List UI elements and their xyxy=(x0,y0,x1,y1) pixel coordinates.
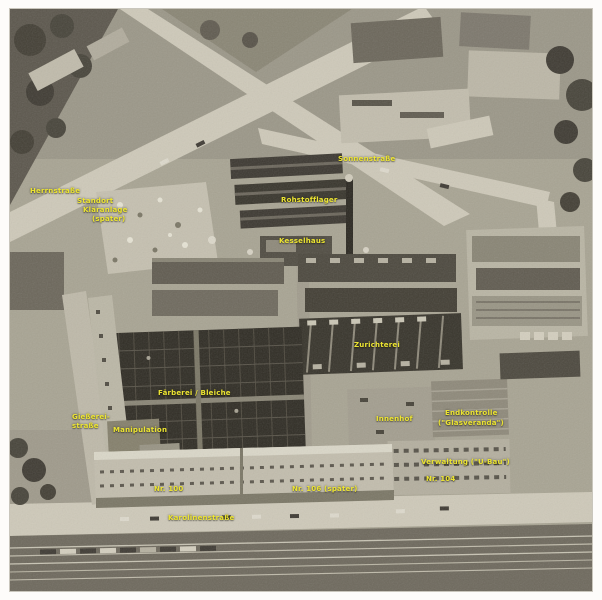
aerial-photo-image xyxy=(10,9,592,591)
scanned-photo-page: HerrnstraßeStandortKläranlage(später)Son… xyxy=(0,0,602,600)
film-grain xyxy=(10,9,592,591)
aerial-photo xyxy=(10,9,592,591)
